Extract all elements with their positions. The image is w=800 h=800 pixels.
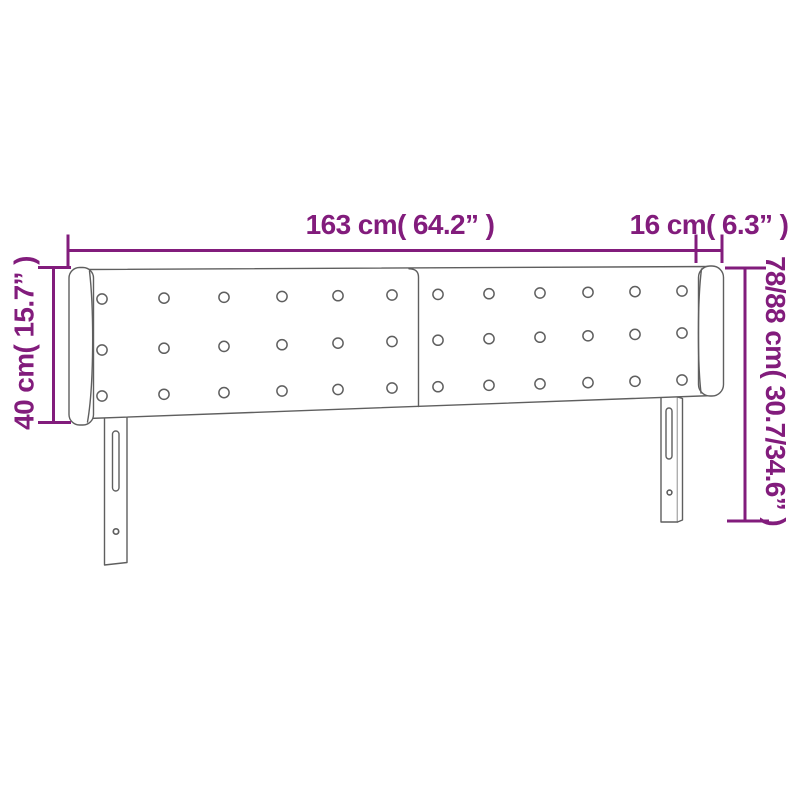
tufting-button xyxy=(333,291,343,301)
tufting-button xyxy=(333,338,343,348)
tufting-button xyxy=(387,336,397,346)
tufting-button xyxy=(159,293,169,303)
tufting-button xyxy=(387,290,397,300)
left-leg xyxy=(105,413,128,565)
tufting-button xyxy=(277,340,287,350)
tufting-button xyxy=(159,389,169,399)
tufting-button xyxy=(433,289,443,299)
tufting-button xyxy=(583,331,593,341)
tufting-button xyxy=(630,376,640,386)
tufting-button xyxy=(484,380,494,390)
right-wing-body xyxy=(699,266,724,396)
tufting-button xyxy=(97,294,107,304)
tufting-button xyxy=(677,375,687,385)
tufting-button xyxy=(484,289,494,299)
tufting-button xyxy=(159,343,169,353)
total-height-dimension-label: 78/88 cm( 30.7/34.6” ) xyxy=(760,256,791,526)
tufting-button xyxy=(387,383,397,393)
diagram-canvas: 163 cm( 64.2” ) 16 cm( 6.3” ) 40 cm( 15.… xyxy=(0,0,800,800)
panel-height-dimension-label: 40 cm( 15.7” ) xyxy=(9,256,40,430)
tufting-button xyxy=(277,291,287,301)
right-leg xyxy=(661,397,683,522)
headboard-drawing xyxy=(69,266,724,565)
tufting-button xyxy=(677,328,687,338)
left-leg-body xyxy=(105,413,128,565)
tufting-button xyxy=(677,286,687,296)
right-wing xyxy=(698,266,723,396)
tufting-button xyxy=(535,288,545,298)
tufting-button xyxy=(535,379,545,389)
tufting-button xyxy=(583,378,593,388)
tufting-button xyxy=(219,388,229,398)
tufting-button xyxy=(433,382,443,392)
tufting-button xyxy=(219,341,229,351)
tufting-button xyxy=(535,332,545,342)
tufting-button xyxy=(630,287,640,297)
right-leg-side-face xyxy=(678,397,683,522)
width-dimension-label: 163 cm( 64.2” ) xyxy=(306,209,495,240)
tufting-button xyxy=(433,335,443,345)
left-wing xyxy=(69,268,94,426)
tufting-button xyxy=(219,292,229,302)
tufting-button xyxy=(97,391,107,401)
tufting-button xyxy=(630,329,640,339)
tufting-button xyxy=(583,287,593,297)
tufting-button xyxy=(333,384,343,394)
headboard-panel xyxy=(88,267,714,419)
tufting-button xyxy=(484,334,494,344)
wing-depth-dimension-label: 16 cm( 6.3” ) xyxy=(630,209,789,240)
tufting-button xyxy=(97,345,107,355)
headboard-dimension-diagram: 163 cm( 64.2” ) 16 cm( 6.3” ) 40 cm( 15.… xyxy=(0,0,800,800)
tufting-button xyxy=(277,386,287,396)
